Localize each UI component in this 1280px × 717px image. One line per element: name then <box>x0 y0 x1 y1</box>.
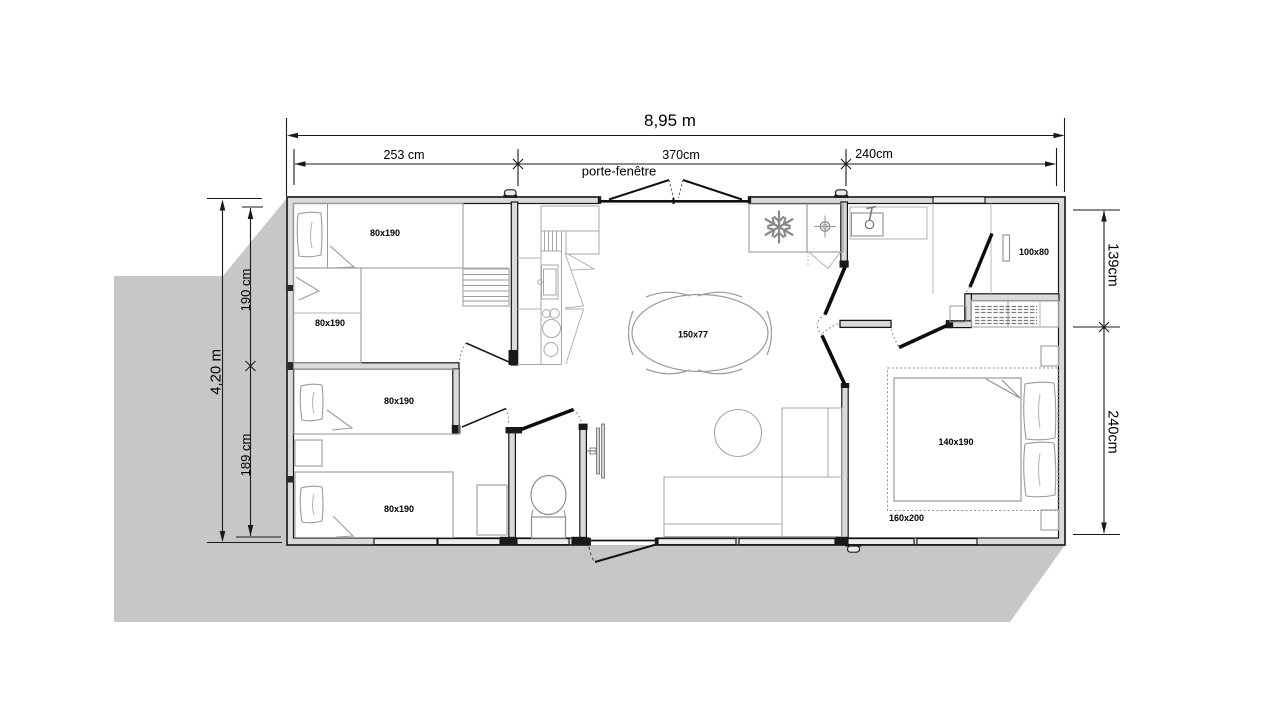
svg-text:80x190: 80x190 <box>315 318 345 328</box>
svg-text:253 cm: 253 cm <box>384 148 425 162</box>
svg-text:139cm: 139cm <box>1105 243 1121 287</box>
svg-text:190 cm: 190 cm <box>238 269 253 312</box>
svg-text:140x190: 140x190 <box>938 437 973 447</box>
svg-text:porte-fenêtre: porte-fenêtre <box>582 164 656 179</box>
svg-text:80x190: 80x190 <box>384 504 414 514</box>
svg-text:8,95 m: 8,95 m <box>644 111 696 130</box>
svg-text:80x190: 80x190 <box>370 228 400 238</box>
svg-text:370cm: 370cm <box>662 148 700 162</box>
svg-text:4,20 m: 4,20 m <box>208 349 225 395</box>
svg-text:189 cm: 189 cm <box>238 434 253 477</box>
svg-text:150x77: 150x77 <box>678 330 708 340</box>
svg-text:240cm: 240cm <box>855 147 893 161</box>
svg-text:160x200: 160x200 <box>889 513 924 523</box>
svg-text:240cm: 240cm <box>1105 410 1121 454</box>
svg-text:100x80: 100x80 <box>1019 247 1049 257</box>
svg-text:80x190: 80x190 <box>384 396 414 406</box>
